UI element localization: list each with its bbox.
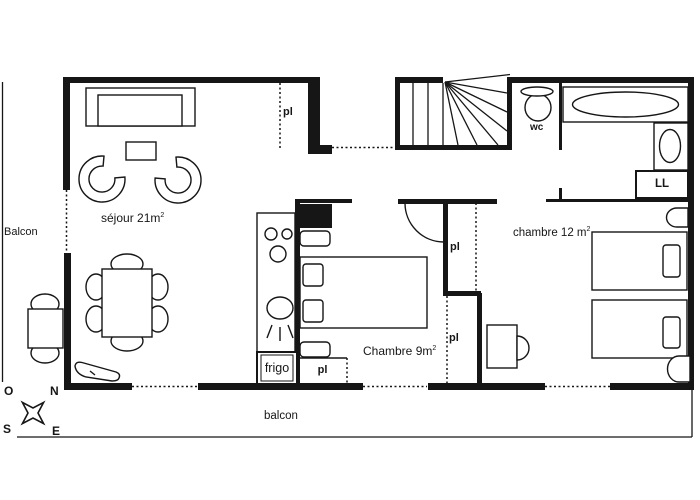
chambre9-closet-upper-label: pl: [450, 242, 460, 253]
nightstand-icon: [300, 342, 330, 357]
nightstand-icon: [300, 231, 330, 246]
chambre9-closet-lower-label: pl: [449, 333, 459, 344]
pillow-icon: [303, 300, 323, 322]
sink-icon: [267, 297, 293, 319]
fridge-label: frigo: [257, 352, 297, 384]
armchair-icon: [79, 156, 125, 202]
duct-icon: [298, 204, 332, 228]
compass-south-label: S: [3, 423, 11, 435]
dining-table-icon: [102, 269, 152, 337]
chambre12-label: chambre 12 m2: [513, 228, 590, 240]
nightstand-icon: [667, 208, 689, 227]
floorplan-drawing: [0, 0, 700, 500]
compass-east-label: E: [52, 425, 60, 437]
desk-chair-icon: [517, 336, 529, 360]
sejour-label: séjour 21m2: [101, 212, 164, 224]
compass-north-label: N: [50, 385, 59, 397]
nightstand-icon: [668, 356, 691, 382]
balcony-table-icon: [28, 294, 63, 363]
coffee-table-icon: [126, 142, 156, 160]
kitchen-closet-label: pl: [298, 358, 347, 383]
hotplate-icon: [270, 246, 286, 262]
sejour-furniture: [28, 88, 201, 381]
entry-closet-label: pl: [283, 107, 293, 118]
balcon-left-label: Balcon: [4, 227, 38, 238]
pillow-icon: [303, 264, 323, 286]
washbasin-icon: [654, 123, 688, 170]
hotplate-icon: [265, 228, 277, 240]
washing-machine-label: LL: [636, 171, 688, 198]
desk-icon: [487, 325, 517, 368]
balcon-bottom-label: balcon: [264, 411, 298, 423]
compass-rose-icon: [22, 402, 43, 423]
staircase-icon: [413, 75, 510, 146]
hotplate-icon: [282, 229, 292, 239]
door-swing-icon: [405, 203, 444, 242]
bathtub-icon: [563, 87, 688, 122]
chambre9-label: Chambre 9m2: [363, 345, 436, 357]
wc-label: wc: [530, 123, 543, 133]
pillow-icon: [663, 317, 680, 348]
bench-icon: [75, 362, 120, 381]
floorplan: Balcon séjour 21m2 pl wc LL chambre 12 m…: [0, 0, 700, 500]
toilet-icon: [521, 87, 553, 121]
pillow-icon: [663, 245, 680, 277]
compass-west-label: O: [4, 385, 13, 397]
armchair-icon: [155, 157, 201, 203]
